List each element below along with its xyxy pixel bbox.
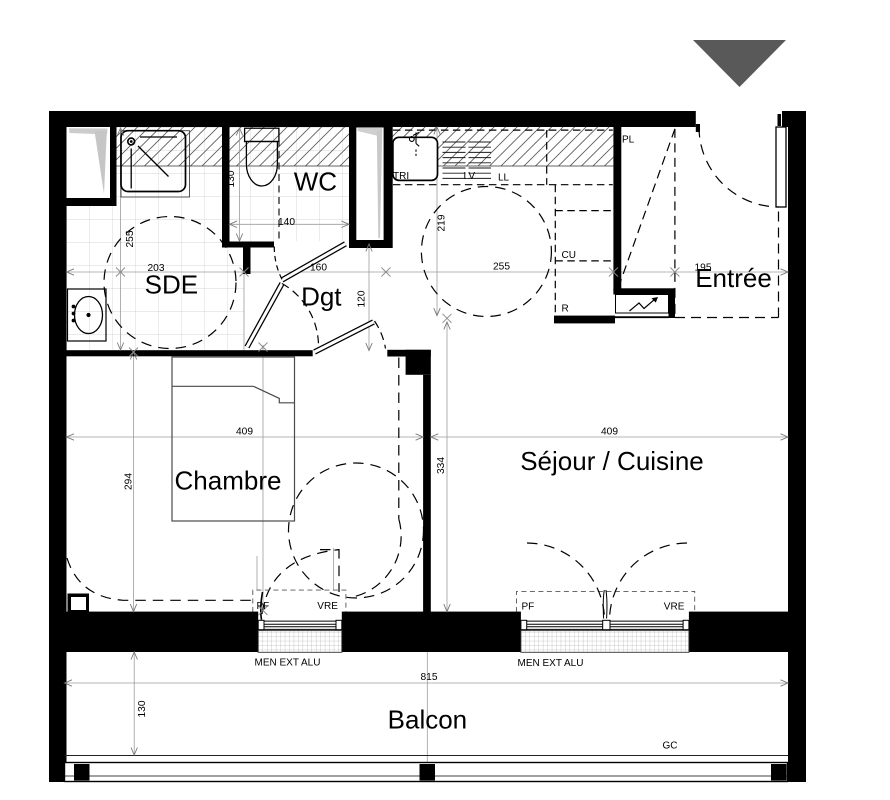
svg-text:130: 130 xyxy=(226,170,237,187)
svg-text:LV: LV xyxy=(464,171,476,182)
svg-text:255: 255 xyxy=(125,230,136,247)
svg-text:334: 334 xyxy=(436,457,447,474)
svg-text:Séjour / Cuisine: Séjour / Cuisine xyxy=(520,446,704,476)
svg-text:120: 120 xyxy=(357,290,368,307)
svg-text:Dgt: Dgt xyxy=(301,282,342,312)
svg-text:130: 130 xyxy=(137,700,148,717)
svg-text:219: 219 xyxy=(437,214,448,231)
svg-text:R: R xyxy=(562,303,569,314)
svg-text:815: 815 xyxy=(421,672,438,683)
svg-text:Chambre: Chambre xyxy=(175,466,282,496)
svg-text:409: 409 xyxy=(601,427,618,438)
svg-text:Entrée: Entrée xyxy=(695,263,772,293)
svg-text:TRI: TRI xyxy=(393,171,409,182)
svg-text:SDE: SDE xyxy=(145,270,198,300)
svg-text:PF: PF xyxy=(257,601,270,612)
svg-text:LL: LL xyxy=(498,172,510,183)
svg-text:PF: PF xyxy=(522,602,535,613)
svg-text:Balcon: Balcon xyxy=(388,705,468,735)
svg-text:VRE: VRE xyxy=(664,602,685,613)
svg-text:PL: PL xyxy=(622,134,635,145)
svg-text:MEN EXT ALU: MEN EXT ALU xyxy=(518,658,584,669)
svg-text:MEN EXT ALU: MEN EXT ALU xyxy=(255,657,321,668)
svg-text:WC: WC xyxy=(294,167,337,197)
svg-text:CU: CU xyxy=(562,250,576,261)
svg-text:160: 160 xyxy=(310,262,327,273)
svg-text:294: 294 xyxy=(124,473,135,490)
svg-text:GC: GC xyxy=(663,741,678,752)
svg-text:VRE: VRE xyxy=(317,601,338,612)
svg-text:140: 140 xyxy=(278,217,295,228)
svg-text:255: 255 xyxy=(493,261,510,272)
svg-text:409: 409 xyxy=(236,427,253,438)
